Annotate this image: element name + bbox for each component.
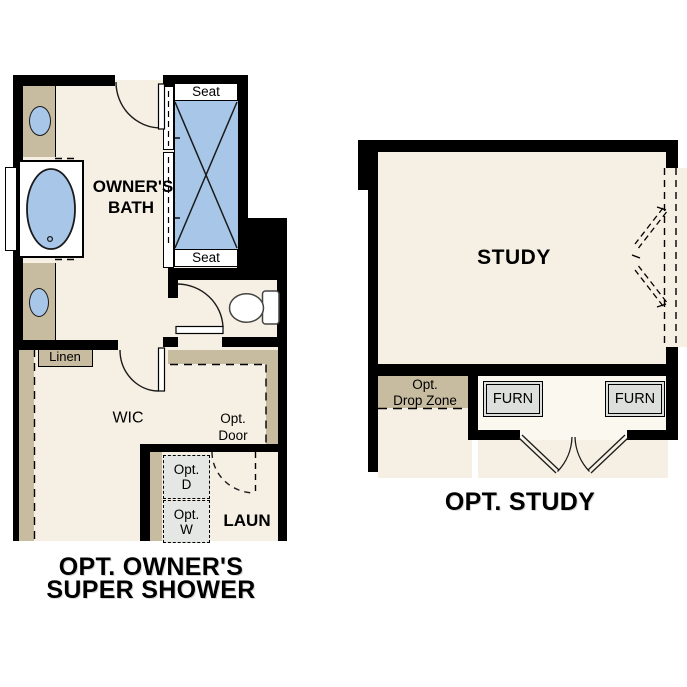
shower-pan: [174, 101, 238, 249]
wall-segment: [237, 86, 248, 222]
wall-segment: [140, 452, 150, 541]
shower-seat-top-label: Seat: [192, 85, 220, 99]
opt-dryer-label-line2: D: [182, 477, 192, 492]
opt-door-label-line1: Opt.: [220, 412, 246, 426]
wall-segment: [277, 280, 287, 340]
study-apron-floor: [478, 440, 668, 478]
left-plan-caption-line2: SUPER SHOWER: [46, 577, 255, 603]
floor-plan-canvas: Opt. D Opt. W FURN FURN: [0, 0, 687, 687]
tub-deck: [18, 160, 84, 258]
wall-segment: [168, 268, 287, 280]
sink-top: [29, 106, 51, 136]
wic-shelf-left: [19, 348, 34, 541]
wall-segment: [237, 218, 287, 270]
drop-zone-label-line1: Opt.: [412, 378, 438, 392]
wall-segment: [168, 268, 178, 298]
laundry-label: LAUN: [223, 512, 270, 530]
wic-label: WIC: [112, 411, 143, 428]
wall-segment: [140, 444, 281, 452]
wall-segment: [666, 140, 678, 168]
wall-segment: [358, 140, 678, 152]
owners-bath-label-line2: BATH: [108, 199, 154, 217]
opt-dryer-label-line1: Opt.: [174, 462, 200, 477]
opt-door-label-line2: Door: [218, 429, 247, 443]
shower-seat-bottom-label: Seat: [192, 251, 220, 265]
furnace-right-box: FURN: [605, 381, 665, 417]
sink-bottom: [29, 288, 49, 317]
owners-bath-label-line1: OWNER'S: [93, 178, 174, 196]
laundry-shelf-left: [150, 452, 162, 541]
drop-zone-label-line2: Drop Zone: [393, 394, 457, 408]
wall-segment: [627, 430, 670, 440]
shower-glass-panel: [163, 86, 174, 150]
wall-segment: [468, 376, 478, 440]
wall-segment: [478, 430, 520, 440]
left-plan-white-notch: [246, 68, 290, 218]
wall-segment: [368, 152, 378, 472]
opt-washer-label-line1: Opt.: [174, 507, 200, 522]
opt-washer-label-line2: W: [180, 522, 193, 537]
wall-segment: [13, 342, 19, 541]
right-plan-caption: OPT. STUDY: [445, 489, 595, 515]
study-door-floor: [666, 168, 687, 347]
furnace-left-label: FURN: [493, 391, 533, 407]
shower-glass-panel: [163, 152, 174, 268]
wall-segment: [13, 75, 115, 86]
furnace-left-box: FURN: [483, 381, 543, 417]
study-label: STUDY: [477, 247, 551, 269]
furnace-right-label: FURN: [615, 391, 655, 407]
wall-segment: [368, 364, 678, 376]
opt-dryer-box: Opt. D: [163, 455, 210, 499]
window: [5, 167, 17, 251]
linen-label: Linen: [49, 350, 81, 364]
wic-shelf-top: [168, 350, 281, 364]
wall-segment: [163, 337, 178, 347]
wall-segment: [278, 337, 287, 541]
opt-washer-box: Opt. W: [163, 500, 210, 543]
